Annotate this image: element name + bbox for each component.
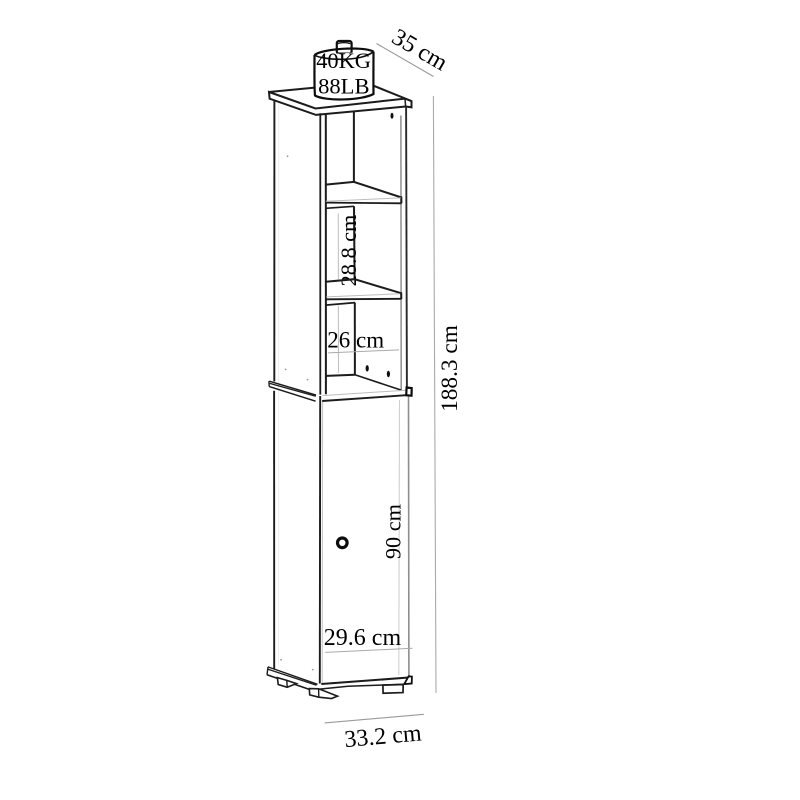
svg-text:188.3 cm: 188.3 cm — [437, 325, 463, 412]
svg-text:88LB: 88LB — [318, 74, 369, 99]
svg-text:28.8 cm: 28.8 cm — [336, 215, 361, 287]
svg-text:26 cm: 26 cm — [327, 328, 384, 353]
svg-text:90 cm: 90 cm — [381, 504, 406, 559]
svg-text:29.6 cm: 29.6 cm — [324, 625, 402, 651]
svg-text:40KG: 40KG — [316, 48, 371, 73]
